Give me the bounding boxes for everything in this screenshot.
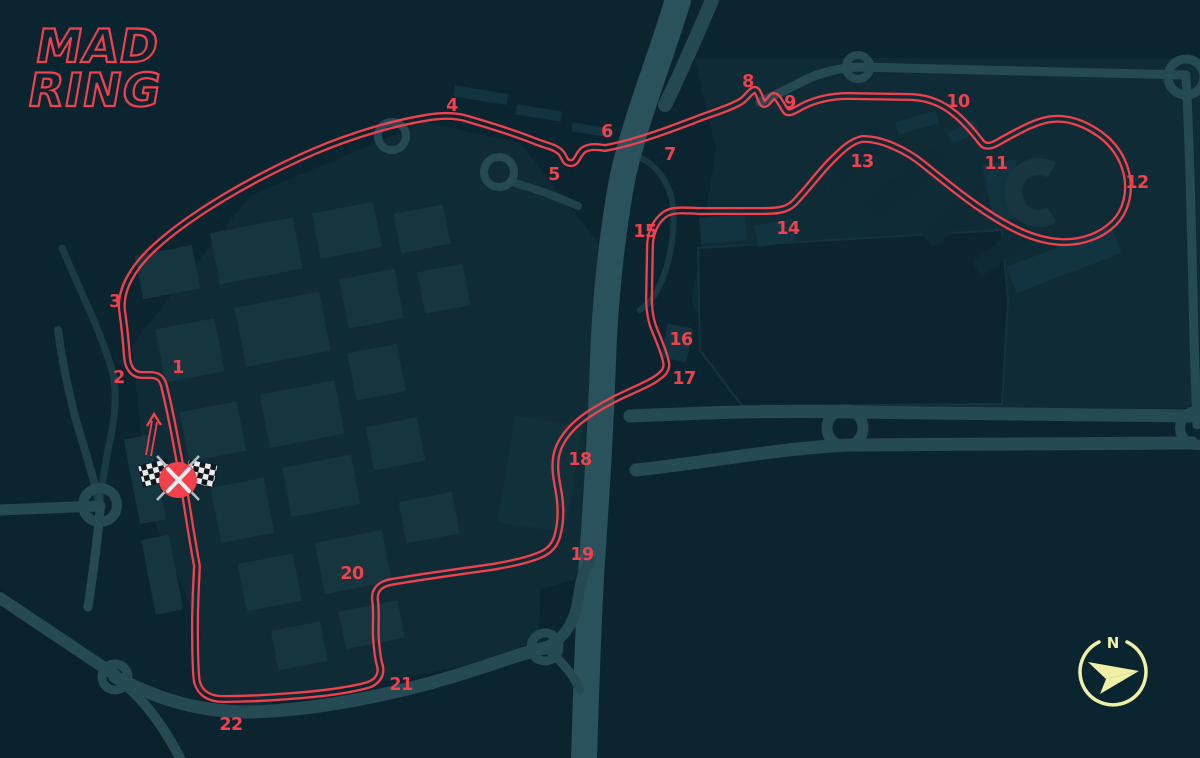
corner-label-10: 10 [946, 92, 970, 112]
building [155, 318, 224, 382]
corner-label-17: 17 [672, 369, 695, 389]
corner-label-13: 13 [850, 152, 873, 172]
corner-label-22: 22 [219, 715, 242, 735]
corner-label-15: 15 [633, 222, 656, 242]
logo: MAD RING [24, 19, 174, 117]
circuit-map: 12345678910111213141516171819202122 MAD … [0, 0, 1200, 758]
corner-label-18: 18 [568, 450, 592, 470]
corner-label-19: 19 [570, 545, 594, 565]
compass-north-label: N [1107, 634, 1120, 652]
road-dual-upper [630, 411, 1192, 416]
logo-line-2: RING [24, 63, 166, 117]
corner-label-16: 16 [669, 330, 693, 350]
corner-label-4: 4 [446, 96, 458, 116]
corner-label-7: 7 [664, 145, 676, 165]
corner-label-1: 1 [172, 358, 184, 378]
corner-label-12: 12 [1125, 173, 1148, 193]
corner-label-11: 11 [984, 154, 1007, 174]
building [699, 214, 747, 243]
corner-label-6: 6 [601, 122, 613, 142]
corner-label-8: 8 [742, 72, 754, 92]
building [339, 269, 404, 329]
corner-label-5: 5 [548, 165, 560, 185]
corner-label-3: 3 [109, 292, 121, 312]
circuit-map-canvas: 12345678910111213141516171819202122 MAD … [0, 0, 1200, 758]
corner-label-14: 14 [776, 219, 800, 239]
corner-label-2: 2 [113, 368, 125, 388]
corner-label-9: 9 [784, 93, 796, 113]
building [417, 264, 470, 314]
building [211, 478, 275, 543]
corner-label-20: 20 [340, 564, 364, 584]
corner-label-21: 21 [389, 675, 412, 695]
park-block [698, 230, 1008, 406]
building [347, 344, 405, 401]
